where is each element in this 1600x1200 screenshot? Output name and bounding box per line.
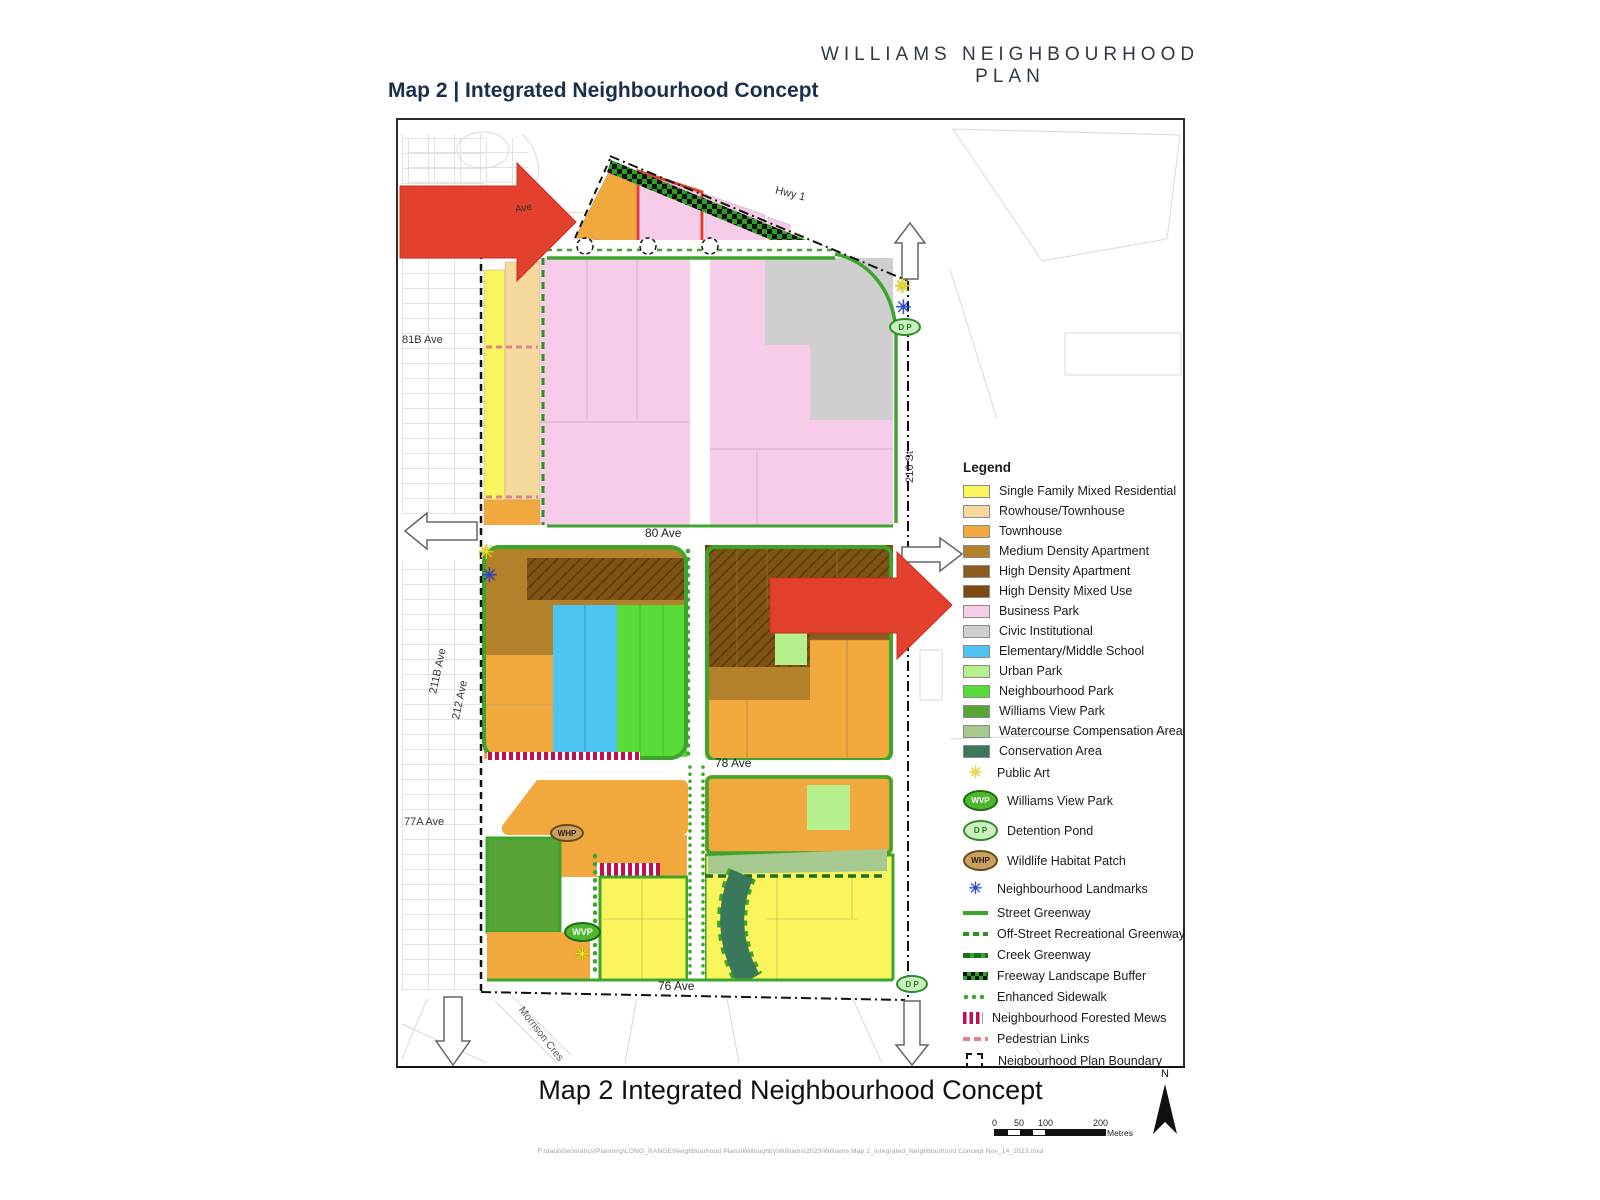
legend-label: Williams View Park [999, 704, 1105, 718]
legend-swatch-mews-icon [963, 1012, 983, 1024]
forested-mews [597, 863, 660, 876]
legend-item: Civic Institutional [963, 624, 1191, 638]
scale-tick: 0 [992, 1118, 997, 1128]
legend-label: Freeway Landscape Buffer [997, 969, 1146, 983]
legend-swatch-fill-icon [963, 585, 990, 598]
legend-swatch-fill-icon [963, 705, 990, 718]
legend-swatch-fill-icon [963, 745, 990, 758]
public-art-icon: ✳ [894, 277, 911, 297]
legend-item: Townhouse [963, 524, 1191, 538]
street-label-81b-ave: 81B Ave [402, 334, 443, 346]
legend-swatch-fill-icon [963, 625, 990, 638]
legend-label: Neighbourhood Landmarks [997, 882, 1148, 896]
landmark-icon: ✳ [895, 298, 912, 318]
legend-label: Enhanced Sidewalk [997, 990, 1107, 1004]
legend-item: Conservation Area [963, 744, 1191, 758]
legend-label: Business Park [999, 604, 1079, 618]
legend-swatch-fill-icon [963, 545, 990, 558]
urban-park [807, 785, 850, 830]
legend-item: Creek Greenway [963, 948, 1191, 962]
legend-swatch-dots-icon [963, 994, 988, 1000]
legend-item: WHPWildlife Habitat Patch [963, 850, 1191, 871]
legend-item: Medium Density Apartment [963, 544, 1191, 558]
legend-swatch-star-icon: ✳ [963, 764, 988, 781]
legend-item: Street Greenway [963, 906, 1191, 920]
townhouse-block [484, 655, 553, 759]
public-art-icon: ✳ [574, 945, 591, 965]
legend-item: Elementary/Middle School [963, 644, 1191, 658]
legend-item: Pedestrian Links [963, 1032, 1191, 1046]
legend-swatch-fill-icon [963, 685, 990, 698]
north-arrow: N [1148, 1068, 1182, 1140]
legend-swatch-fill-icon [963, 485, 990, 498]
legend-swatch-oval-icon: WVP [963, 790, 998, 811]
legend-label: Rowhouse/Townhouse [999, 504, 1125, 518]
legend-swatch-oval-icon: WHP [963, 850, 998, 871]
street-label-76-ave: 76 Ave [658, 979, 694, 993]
road-80-ave [481, 525, 896, 545]
legend-label: Off-Street Recreational Greenway [997, 927, 1185, 941]
arrow-south-east [896, 1001, 928, 1065]
street-label-77a-ave: 77A Ave [404, 816, 444, 828]
legend-swatch-fill-icon [963, 645, 990, 658]
neighbourhood-park [617, 605, 687, 757]
legend-label: Civic Institutional [999, 624, 1093, 638]
legend-label: High Density Apartment [999, 564, 1130, 578]
legend-item: High Density Mixed Use [963, 584, 1191, 598]
legend-swatch-asterisk-icon: ✳ [963, 880, 988, 897]
legend-label: Creek Greenway [997, 948, 1091, 962]
south-east-blocks [688, 765, 893, 980]
legend-swatch-line-solid-icon [963, 911, 988, 915]
business-park-blocks [540, 240, 893, 525]
legend-item: Off-Street Recreational Greenway [963, 927, 1191, 941]
legend-label: Pedestrian Links [997, 1032, 1089, 1046]
legend-swatch-oval-icon: D P [963, 820, 998, 841]
legend-swatch-fill-icon [963, 565, 990, 578]
arrow-south-west [436, 997, 470, 1065]
legend-swatch-fill-icon [963, 665, 990, 678]
legend-swatch-ped-icon [963, 1037, 988, 1041]
legend-item: Freeway Landscape Buffer [963, 969, 1191, 983]
public-art-icon: ✳ [478, 543, 495, 563]
legend-item: Neighbourhood Forested Mews [963, 1011, 1191, 1025]
single-family-block [600, 877, 687, 980]
scale-tick: 200 [1093, 1118, 1108, 1128]
legend-label: Conservation Area [999, 744, 1102, 758]
legend-label: Elementary/Middle School [999, 644, 1144, 658]
legend-label: Detention Pond [1007, 824, 1093, 838]
arrow-west [405, 513, 477, 549]
legend-item: WVPWilliams View Park [963, 790, 1191, 811]
legend-item: Enhanced Sidewalk [963, 990, 1191, 1004]
west-strip-parcels [484, 262, 540, 545]
file-path: F:\data\Geomatics\Planning\LONG_RANGE\Ne… [396, 1148, 1185, 1155]
detention-pond-marker: D P [896, 975, 928, 993]
legend-label: Medium Density Apartment [999, 544, 1149, 558]
legend-label: Townhouse [999, 524, 1062, 538]
legend-item: Williams View Park [963, 704, 1191, 718]
legend-item: Neighbourhood Park [963, 684, 1191, 698]
legend-label: Wildlife Habitat Patch [1007, 854, 1126, 868]
legend-label: Single Family Mixed Residential [999, 484, 1176, 498]
map-title: Map 2 Integrated Neighbourhood Concept [396, 1075, 1185, 1106]
legend-item: D PDetention Pond [963, 820, 1191, 841]
legend-panel: Legend Single Family Mixed ResidentialRo… [963, 460, 1191, 1076]
legend-item: Watercourse Compensation Area [963, 724, 1191, 738]
street-label-216-st: 216 St [904, 437, 916, 497]
legend-label: Williams View Park [1007, 794, 1113, 808]
street-label-80-ave: 80 Ave [645, 526, 681, 540]
wildlife-habitat-patch-marker: WHP [550, 824, 584, 842]
plan-title: WILLIAMS NEIGHBOURHOOD PLAN [800, 44, 1220, 88]
map-title-bar: Map 2 Integrated Neighbourhood Concept 0… [396, 1066, 1185, 1156]
north-arrow-glyph [1149, 1080, 1181, 1138]
legend-swatch-fill-icon [963, 505, 990, 518]
legend-swatch-fill-icon [963, 605, 990, 618]
legend-swatch-checker-icon [963, 972, 988, 980]
williams-view-park-marker: WVP [564, 922, 601, 942]
legend-item: Business Park [963, 604, 1191, 618]
legend-swatch-line-dashed-icon [963, 932, 988, 936]
legend-item: ✳Public Art [963, 764, 1191, 781]
williams-view-park [487, 838, 560, 932]
legend-swatch-fill-icon [963, 725, 990, 738]
scale-strip [994, 1129, 1106, 1136]
southwest-superblock [482, 545, 688, 765]
scale-tick: 50 [1014, 1118, 1024, 1128]
medium-density-apartment [705, 667, 810, 700]
legend-item: Urban Park [963, 664, 1191, 678]
landmark-icon: ✳ [481, 566, 498, 586]
legend-item: High Density Apartment [963, 564, 1191, 578]
legend-item: ✳Neighbourhood Landmarks [963, 880, 1191, 897]
street-label-78-ave: 78 Ave [715, 756, 751, 770]
legend-swatch-fill-icon [963, 525, 990, 538]
north-label: N [1161, 1068, 1169, 1080]
legend-label: Neighbourhood Forested Mews [992, 1011, 1166, 1025]
legend-label: Public Art [997, 766, 1050, 780]
page: WILLIAMS NEIGHBOURHOOD PLAN Map 2 | Inte… [0, 0, 1600, 1200]
detention-pond-marker: D P [889, 318, 921, 336]
legend-label: Watercourse Compensation Area [999, 724, 1183, 738]
scale-bar: 0 50 100 200 Metres [994, 1118, 1164, 1140]
page-title: Map 2 | Integrated Neighbourhood Concept [388, 79, 819, 103]
legend-item: Rowhouse/Townhouse [963, 504, 1191, 518]
legend-item: Single Family Mixed Residential [963, 484, 1191, 498]
high-density-mixed-use [527, 558, 686, 600]
legend-swatch-line-creek-icon [963, 953, 988, 958]
legend-label: Urban Park [999, 664, 1062, 678]
scale-tick: 100 [1038, 1118, 1053, 1128]
legend-title: Legend [963, 460, 1191, 475]
legend-label: Neighbourhood Park [999, 684, 1114, 698]
legend-items: Single Family Mixed ResidentialRowhouse/… [963, 484, 1191, 1069]
scale-unit: Metres [1107, 1128, 1133, 1138]
legend-label: Street Greenway [997, 906, 1091, 920]
arrow-north [895, 223, 925, 279]
legend-label: High Density Mixed Use [999, 584, 1132, 598]
